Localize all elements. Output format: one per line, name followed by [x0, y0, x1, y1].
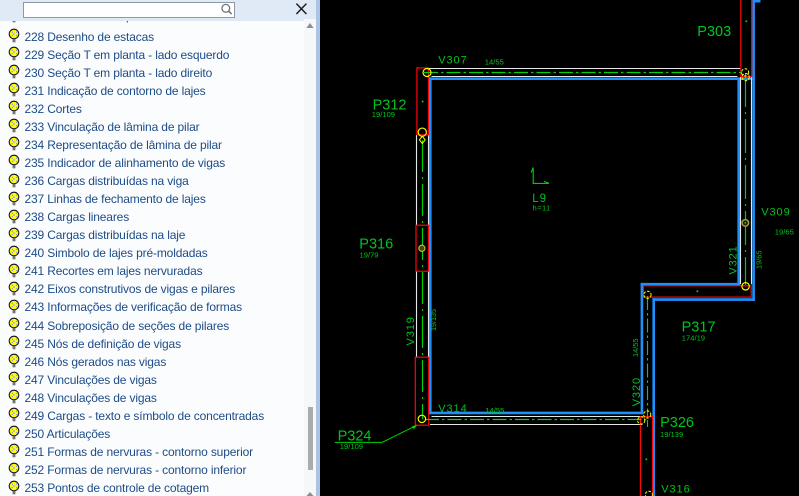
svg-text:19/139: 19/139	[660, 430, 683, 439]
svg-text:174/19: 174/19	[682, 333, 705, 342]
svg-text:V316: V316	[661, 483, 690, 495]
svg-text:19/109: 19/109	[340, 442, 363, 451]
svg-text:19/65: 19/65	[775, 228, 794, 237]
svg-text:V309: V309	[761, 207, 790, 219]
svg-text:V320: V320	[631, 377, 643, 406]
svg-text:14/55: 14/55	[485, 406, 504, 415]
svg-text:h=11: h=11	[533, 204, 551, 213]
svg-text:V319: V319	[405, 316, 417, 345]
svg-text:V314: V314	[438, 403, 467, 415]
svg-text:19/79: 19/79	[360, 250, 379, 259]
svg-text:19/109: 19/109	[372, 110, 395, 119]
svg-text:14/55: 14/55	[631, 339, 640, 358]
svg-text:P326: P326	[660, 415, 694, 431]
svg-text:19/65: 19/65	[755, 251, 764, 270]
svg-text:19/135: 19/135	[429, 309, 438, 331]
svg-text:P303: P303	[697, 24, 731, 40]
svg-text:V321: V321	[728, 245, 740, 274]
svg-text:14/55: 14/55	[485, 57, 504, 66]
svg-text:V307: V307	[438, 55, 467, 67]
